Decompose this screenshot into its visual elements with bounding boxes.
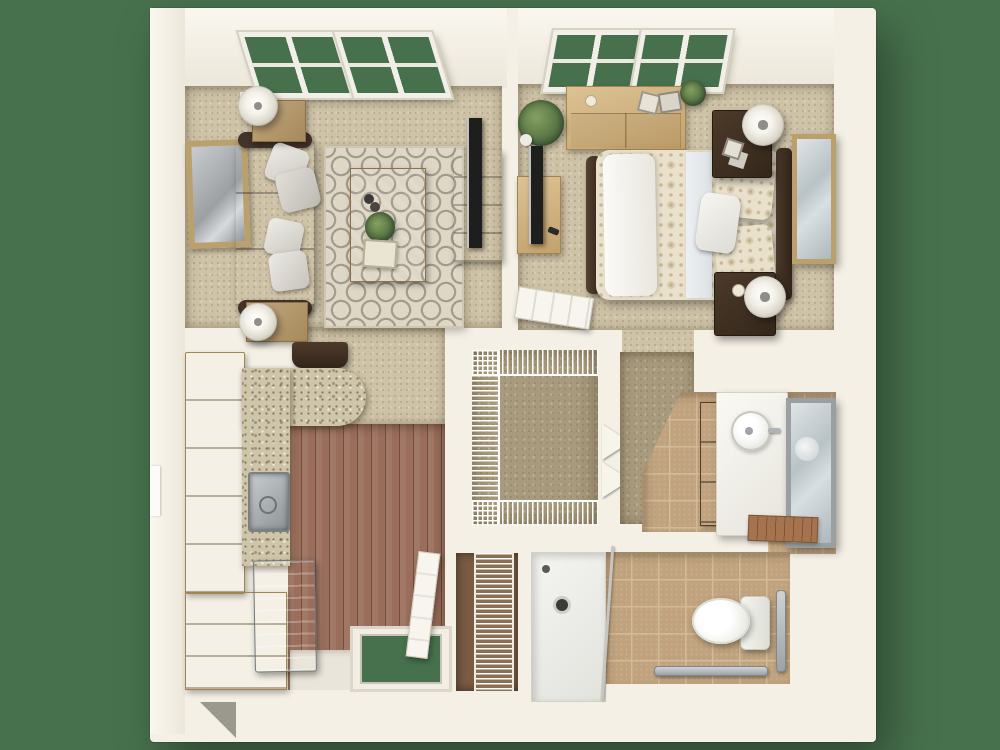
sink-drain bbox=[259, 496, 277, 514]
dresser-drawers bbox=[571, 113, 681, 148]
bath-mat bbox=[748, 515, 819, 543]
coffee-table-tray bbox=[362, 239, 398, 269]
sofa bbox=[236, 132, 316, 318]
kitchen-sink bbox=[248, 472, 290, 532]
kitchen-tall-cabinets bbox=[185, 352, 245, 594]
toilet bbox=[692, 594, 772, 650]
living-window-2 bbox=[334, 32, 452, 98]
bed-headboard bbox=[776, 148, 792, 300]
table-lamp-top bbox=[238, 86, 278, 126]
nightstand-lamp-top bbox=[742, 104, 784, 146]
coffee-table-cups bbox=[364, 194, 374, 204]
bedroom-window-1 bbox=[543, 30, 646, 92]
closet-shelf-bottom bbox=[472, 500, 598, 526]
bed-pillow-white bbox=[694, 191, 742, 254]
sofa-pillow-2 bbox=[274, 166, 322, 214]
coffee-table-plant bbox=[365, 212, 395, 242]
bedroom-window-2 bbox=[631, 30, 734, 92]
shower-head bbox=[542, 565, 550, 573]
dresser-desk bbox=[566, 86, 686, 150]
grab-bar-rear-wall bbox=[654, 666, 768, 676]
floorplan-scene bbox=[0, 0, 1000, 750]
bedroom-plant-pot bbox=[520, 134, 532, 146]
desk-candle bbox=[585, 95, 597, 107]
vanity-sink-drain bbox=[745, 427, 753, 435]
shower-floor bbox=[531, 552, 606, 702]
closet-shelf-left bbox=[472, 350, 500, 524]
left-exterior-wall bbox=[150, 8, 185, 734]
linen-closet-shelves bbox=[474, 553, 514, 691]
living-room-tv bbox=[467, 118, 482, 248]
vanity-faucet bbox=[768, 428, 780, 433]
toilet-bowl bbox=[692, 598, 750, 644]
left-wall-window-sliver bbox=[150, 466, 160, 516]
nightstand-lamp-bottom bbox=[744, 276, 786, 318]
table-lamp-bottom bbox=[239, 303, 277, 341]
grab-bar-side-wall bbox=[776, 590, 786, 672]
coffee-table bbox=[350, 168, 424, 280]
shower-drain bbox=[556, 599, 568, 611]
bedroom-tv bbox=[529, 146, 543, 244]
bench bbox=[292, 342, 348, 368]
closet-shelf-top bbox=[472, 350, 598, 376]
bedroom-doorway-carpet bbox=[622, 330, 694, 354]
desk-plant bbox=[680, 80, 706, 106]
counter-run bbox=[242, 368, 290, 566]
entry-door-opening bbox=[360, 634, 442, 684]
desk-frame-2 bbox=[658, 90, 683, 113]
mirror-sink-reflection bbox=[795, 437, 819, 461]
bed-sheet-fold bbox=[603, 154, 657, 297]
refrigerator bbox=[253, 559, 317, 672]
sofa-pillow-4 bbox=[268, 250, 311, 293]
bedroom-wall-mirror bbox=[792, 134, 836, 264]
